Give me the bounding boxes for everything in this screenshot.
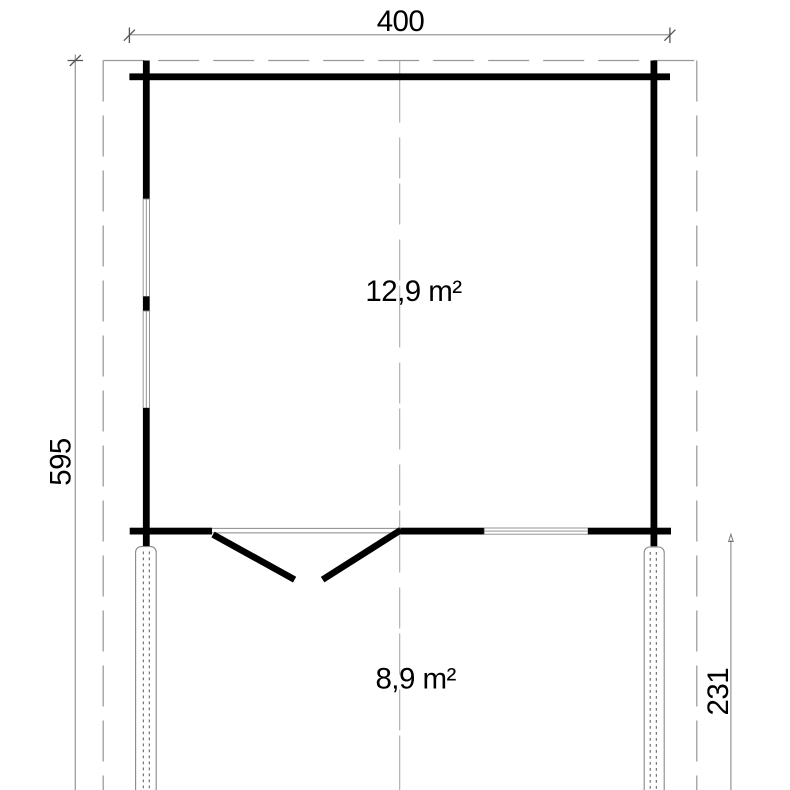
svg-text:400: 400 [377, 5, 425, 38]
svg-text:231: 231 [702, 668, 735, 716]
svg-text:8,9 m²: 8,9 m² [375, 662, 456, 695]
svg-text:12,9 m²: 12,9 m² [365, 275, 462, 308]
svg-text:595: 595 [45, 438, 78, 486]
